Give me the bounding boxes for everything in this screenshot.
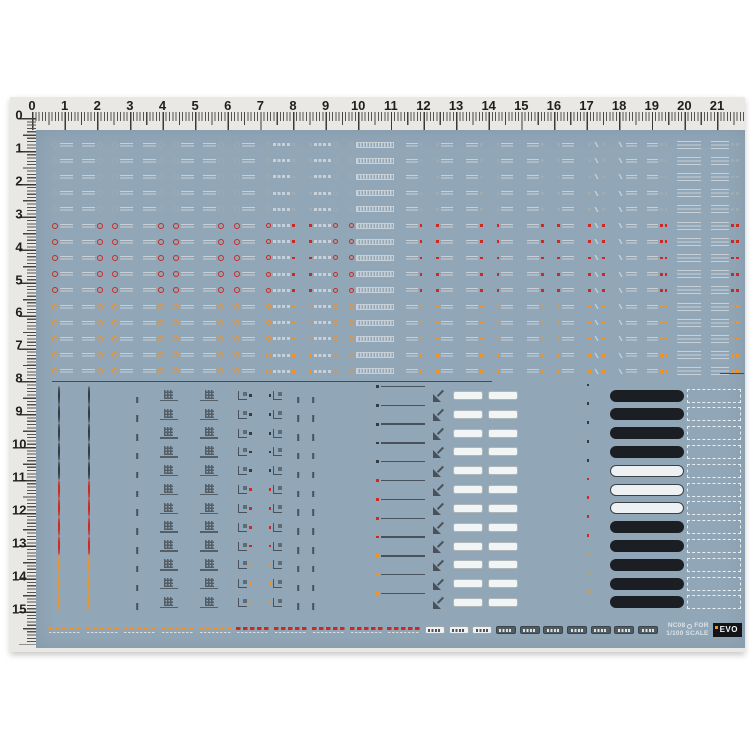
decal-row <box>48 138 742 151</box>
decal-mark-text-dot <box>321 462 347 479</box>
decal-mark-circle-dash <box>170 187 198 200</box>
decal-mark-circle-dash <box>170 170 198 183</box>
decal-mark-bracket-dot <box>103 519 125 536</box>
decal-mark-tee-mark2 <box>306 538 320 555</box>
decal-mark-roundel-large <box>44 462 74 479</box>
decal-mark-circle-bar-square <box>261 170 301 183</box>
decal-mark-stack-lines <box>673 219 705 232</box>
decal-mark-dash-circle <box>78 332 106 345</box>
ruler-top-number: 10 <box>351 99 365 112</box>
decal-mark-bracket-dot <box>103 594 125 611</box>
decal-mark-circle-dash <box>109 138 137 151</box>
decal-mark-tee-mark <box>291 538 305 555</box>
decal-mark-dash-circle <box>78 154 106 167</box>
decal-mark-circle-bar-square <box>261 219 301 232</box>
decal-mark-circle-dash <box>48 365 76 378</box>
decal-mark-circle-dash <box>109 349 137 362</box>
decal-mark-step-square <box>230 519 260 536</box>
decal-mark-circle-hatch-bar <box>346 316 398 329</box>
decal-mark-roundel-large <box>44 500 74 517</box>
decal-mark-dashed-box <box>686 387 742 404</box>
decal-mark-pill-label <box>451 443 485 460</box>
decal-mark-dash-circle <box>139 138 167 151</box>
decal-mark-square-bar-circle <box>303 268 343 281</box>
decal-mark-stack-dots <box>708 170 742 183</box>
mini-label-pill-dark <box>614 626 634 634</box>
decal-mark-circle-bar-square <box>261 251 301 264</box>
decal-mark-roundel-small <box>75 594 103 611</box>
decal-mark-circle-bar-square <box>261 284 301 297</box>
decal-mark-tee-mark2 <box>306 519 320 536</box>
decal-mark-circle-bar-square <box>261 154 301 167</box>
decal-mark-circle-dash <box>109 170 137 183</box>
decal-mark-circle-dash <box>48 300 76 313</box>
brand-roundel-icon <box>687 624 692 629</box>
decal-mark-dash-dot <box>521 235 549 248</box>
decal-mark-circle-dash <box>48 235 76 248</box>
decal-mark-tee-mark2 <box>306 481 320 498</box>
decal-mark-circle-dash <box>48 170 76 183</box>
decal-mark-dash-circle <box>200 349 228 362</box>
decal-mark-arrow-dash <box>613 154 641 167</box>
ruler-top-ticks <box>32 112 745 130</box>
decal-mark-circle-dash <box>48 268 76 281</box>
decal-mark-hazard-bar <box>521 538 609 555</box>
decal-mark-circle-dash <box>48 316 76 329</box>
decal-mark-circle-dash <box>109 300 137 313</box>
decal-mark-dash-dot <box>461 203 489 216</box>
ruler-top-number: 5 <box>191 99 198 112</box>
decal-mark-circle-hatch-bar <box>346 284 398 297</box>
decal-mark-bracket-tee <box>126 406 148 423</box>
decal-mark-arrow-diagonal <box>429 443 451 460</box>
decal-mark-bracket-tee <box>126 575 148 592</box>
decal-mark-bracket-tee <box>126 387 148 404</box>
decal-row <box>44 519 742 536</box>
decal-mark-dot-dash <box>430 316 458 329</box>
decal-mark-text-dot <box>321 481 347 498</box>
decal-mark-dot-dash <box>552 332 580 345</box>
decal-mark-arrow-dash <box>613 268 641 281</box>
color-dash-group-orange <box>161 627 195 633</box>
decal-mark-dash-circle <box>78 268 106 281</box>
decal-mark-dash-circle <box>139 219 167 232</box>
decal-mark-circle-dash <box>230 349 258 362</box>
decal-mark-dash-dot <box>521 170 549 183</box>
decal-mark-dash-dot <box>521 138 549 151</box>
decal-mark-dot-dash <box>491 154 519 167</box>
decal-mark-bracket-tee <box>126 538 148 555</box>
decal-mark-dot-dash <box>491 332 519 345</box>
decal-mark-text-dot <box>321 575 347 592</box>
decal-mark-tee-mark2 <box>306 594 320 611</box>
decal-row <box>44 462 742 479</box>
decal-mark-dash-dot <box>461 219 489 232</box>
decal-mark-pill-label <box>451 519 485 536</box>
decal-mark-dash-circle <box>139 203 167 216</box>
decal-mark-arrow-diagonal <box>429 481 451 498</box>
decal-mark-roundel-large <box>44 406 74 423</box>
decal-sheet-photo: 0123456789101112131415161718192021 01234… <box>10 97 745 652</box>
decal-mark-text-line-long <box>374 500 428 517</box>
decal-mark-text-dot <box>321 425 347 442</box>
decal-mark-dash-circle <box>200 251 228 264</box>
decal-mark-dash-circle <box>139 235 167 248</box>
decal-row <box>44 538 742 555</box>
decal-mark-circle-dash <box>109 219 137 232</box>
decal-mark-arrow-diagonal <box>429 575 451 592</box>
decal-mark-tee-mark2 <box>306 425 320 442</box>
decal-mark-square-step <box>261 594 291 611</box>
decal-mark-grid-pair2 <box>189 406 229 423</box>
decal-mark-dots-arrow <box>582 170 610 183</box>
decal-mark-black-panel <box>609 462 685 479</box>
decal-mark-stack-lines <box>673 138 705 151</box>
color-dash-group-red <box>274 627 308 633</box>
decal-mark-circle-dash <box>48 332 76 345</box>
decal-mark-tee-mark2 <box>306 462 320 479</box>
decal-mark-square-step <box>261 538 291 555</box>
decal-mark-square-step <box>261 387 291 404</box>
decal-mark-hazard-bar <box>521 387 609 404</box>
ruler-left-number: 13 <box>12 536 26 549</box>
decal-mark-arrow-diagonal <box>429 500 451 517</box>
decal-mark-black-panel <box>609 519 685 536</box>
decal-mark-text-dot <box>321 519 347 536</box>
decal-mark-dashed-box <box>686 594 742 611</box>
decal-mark-circle-bar-square <box>261 300 301 313</box>
decal-mark-dot-dash <box>430 203 458 216</box>
decal-mark-bracket-tee <box>126 481 148 498</box>
decal-mark-dot-dash <box>552 365 580 378</box>
decal-mark-circle-bar-square <box>261 203 301 216</box>
color-dash-group-orange <box>48 627 82 633</box>
decal-mark-hazard-bar <box>521 462 609 479</box>
ruler-left-number: 5 <box>12 273 26 286</box>
decal-mark-dash-circle <box>200 187 228 200</box>
decal-mark-circle-dash <box>109 268 137 281</box>
decal-mark-tee-mark <box>291 556 305 573</box>
ruler-left-number: 7 <box>12 339 26 352</box>
decal-mark-bracket-dot <box>103 443 125 460</box>
decal-mark-pill-label <box>451 425 485 442</box>
decal-mark-roundel-small <box>75 538 103 555</box>
decal-row <box>48 284 742 297</box>
decal-mark-arrow-diagonal <box>429 387 451 404</box>
decal-mark-roundel-large <box>44 425 74 442</box>
decal-mark-dash-circle <box>78 284 106 297</box>
decal-mark-square-bar-circle <box>303 365 343 378</box>
decal-mark-pill-label <box>451 556 485 573</box>
mini-label-pill-white <box>425 626 445 634</box>
decal-mark-dash-dots <box>643 138 671 151</box>
decal-mark-dots-arrow <box>582 300 610 313</box>
decal-mark-pill-label2 <box>486 406 520 423</box>
ruler-top-number: 8 <box>289 99 296 112</box>
decal-mark-hazard-bar <box>521 406 609 423</box>
decal-mark-pill-label2 <box>486 443 520 460</box>
decal-mark-stack-lines <box>673 187 705 200</box>
decal-mark-square-step <box>261 443 291 460</box>
decal-mark-dashed-box <box>686 443 742 460</box>
decal-mark-dash-circle <box>139 300 167 313</box>
decal-mark-arrow-diagonal <box>429 594 451 611</box>
decal-mark-dash-circle <box>200 316 228 329</box>
decal-mark-dash-circle <box>200 170 228 183</box>
decal-mark-grid-pair <box>149 481 189 498</box>
decal-mark-roundel-small <box>75 387 103 404</box>
decal-mark-square-bar-circle <box>303 332 343 345</box>
decal-mark-hazard-bar <box>521 500 609 517</box>
decal-mark-dash-circle <box>139 316 167 329</box>
mini-label-pill-dark <box>496 626 516 634</box>
decal-mark-dots-arrow <box>582 187 610 200</box>
decal-mark-circle-dash <box>230 251 258 264</box>
decal-mark-stack-dots <box>708 268 742 281</box>
decal-mark-roundel-large <box>44 443 74 460</box>
decal-mark-text-line-long <box>374 481 428 498</box>
decal-mark-dot-dash <box>491 284 519 297</box>
ruler-left-number: 3 <box>12 207 26 220</box>
decal-mark-dash-circle <box>200 203 228 216</box>
decal-mark-dot-dash <box>552 284 580 297</box>
decal-mark-grid-pair <box>149 387 189 404</box>
ruler-top-number: 9 <box>322 99 329 112</box>
decal-row <box>44 406 742 423</box>
decal-mark-dashed-box <box>686 406 742 423</box>
decal-mark-step-square <box>230 387 260 404</box>
mini-label-pill-dark <box>591 626 611 634</box>
decal-mark-grid-pair <box>149 575 189 592</box>
decal-mark-circle-dash <box>230 365 258 378</box>
decal-mark-roundel-large <box>44 594 74 611</box>
decal-mark-bracket-dot <box>103 387 125 404</box>
decal-mark-dash-dots <box>643 300 671 313</box>
decal-mark-grid-pair2 <box>189 443 229 460</box>
decal-mark-hazard-bar <box>521 594 609 611</box>
decal-mark-dot-dash <box>552 316 580 329</box>
decal-mark-dot-dash <box>491 316 519 329</box>
scale-note: NC08 FOR 1/100 SCALE <box>666 623 708 638</box>
decal-mark-dash-dot <box>521 187 549 200</box>
decal-mark-dash-dots <box>643 187 671 200</box>
decal-grid-lower <box>44 387 742 611</box>
decal-mark-circle-hatch-bar <box>346 187 398 200</box>
ruler-top-number: 15 <box>514 99 528 112</box>
cut-line <box>52 381 492 382</box>
decal-mark-dash-dot <box>461 170 489 183</box>
decal-mark-step-square <box>230 556 260 573</box>
decal-row <box>48 349 742 362</box>
decal-mark-roundel-small <box>75 556 103 573</box>
decal-mark-step-square <box>230 443 260 460</box>
decal-mark-dash-circle <box>139 284 167 297</box>
decal-mark-step-square <box>230 406 260 423</box>
decal-mark-grid-pair <box>149 500 189 517</box>
decal-mark-square-step <box>261 425 291 442</box>
ruler-left-number: 2 <box>12 174 26 187</box>
decal-mark-hazard-bar <box>521 481 609 498</box>
decal-mark-tee-mark2 <box>306 406 320 423</box>
decal-mark-arrow-dash <box>613 138 641 151</box>
decal-mark-dash-circle <box>78 219 106 232</box>
decal-mark-circle-dash <box>109 203 137 216</box>
decal-mark-square-bar-circle <box>303 170 343 183</box>
decal-mark-circle-dash <box>170 365 198 378</box>
decal-mark-bracket-tee <box>126 594 148 611</box>
decal-mark-bracket-tee <box>126 556 148 573</box>
decal-mark-grid-pair2 <box>189 575 229 592</box>
decal-mark-circle-dash <box>230 332 258 345</box>
color-dash-group-orange <box>199 627 233 633</box>
decal-mark-grid-pair2 <box>189 387 229 404</box>
decal-mark-bracket-dot <box>103 538 125 555</box>
decal-mark-dash-dot <box>521 251 549 264</box>
decal-mark-dash-circle <box>78 138 106 151</box>
decal-mark-text-dot <box>321 387 347 404</box>
decal-mark-step-square <box>230 538 260 555</box>
decal-mark-stack-dots <box>708 300 742 313</box>
decal-mark-dash-circle <box>78 365 106 378</box>
decal-row <box>48 365 742 378</box>
decal-mark-pill-label2 <box>486 425 520 442</box>
decal-row <box>44 443 742 460</box>
color-dash-group-red <box>312 627 346 633</box>
decal-mark-grid-pair2 <box>189 519 229 536</box>
decal-mark-circle-dash <box>170 284 198 297</box>
ruler-top-number: 13 <box>449 99 463 112</box>
decal-mark-dots-arrow <box>582 138 610 151</box>
decal-mark-bracket-dot <box>103 462 125 479</box>
color-dash-group-red <box>236 627 270 633</box>
decal-mark-dot-text <box>347 500 373 517</box>
decal-mark-dash-dot <box>461 154 489 167</box>
decal-mark-tee-mark <box>291 387 305 404</box>
ruler-left-number: 1 <box>12 141 26 154</box>
decal-mark-dash-circle <box>139 154 167 167</box>
decal-mark-circle-dash <box>48 138 76 151</box>
decal-mark-roundel-small <box>75 425 103 442</box>
decal-mark-dot-dash <box>430 219 458 232</box>
ruler-left-number: 14 <box>12 569 26 582</box>
decal-mark-dot-text <box>347 387 373 404</box>
decal-mark-dash-dot <box>400 300 428 313</box>
ruler-top-number: 0 <box>28 99 35 112</box>
decal-mark-arrow-diagonal <box>429 519 451 536</box>
decal-mark-pill-label2 <box>486 462 520 479</box>
decal-mark-text-line-long <box>374 538 428 555</box>
decal-mark-pill-label <box>451 500 485 517</box>
decal-mark-circle-dash <box>109 332 137 345</box>
decal-mark-dashed-box <box>686 519 742 536</box>
decal-mark-circle-dash <box>170 268 198 281</box>
decal-mark-circle-hatch-bar <box>346 170 398 183</box>
decal-mark-tee-mark2 <box>306 387 320 404</box>
decal-mark-dash-dot <box>461 187 489 200</box>
decal-mark-circle-hatch-bar <box>346 300 398 313</box>
decal-mark-grid-pair2 <box>189 481 229 498</box>
decal-row <box>44 594 742 611</box>
decal-mark-pill-label <box>451 406 485 423</box>
decal-mark-circle-dash <box>230 268 258 281</box>
decal-mark-dash-circle <box>78 235 106 248</box>
decal-mark-roundel-large <box>44 387 74 404</box>
decal-mark-circle-dash <box>170 203 198 216</box>
decal-mark-dot-dash <box>430 235 458 248</box>
decal-row <box>48 332 742 345</box>
decal-mark-dot-dash <box>491 235 519 248</box>
decal-mark-dash-dot <box>461 268 489 281</box>
decal-mark-dots-arrow <box>582 154 610 167</box>
decal-mark-dot-text <box>347 594 373 611</box>
decal-mark-circle-dash <box>170 235 198 248</box>
decal-mark-dot-dash <box>552 251 580 264</box>
decal-mark-stack-lines <box>673 300 705 313</box>
decal-mark-dash-dots <box>643 251 671 264</box>
decal-mark-arrow-dash <box>613 332 641 345</box>
decal-mark-circle-dash <box>109 187 137 200</box>
decal-mark-text-dot <box>321 500 347 517</box>
decal-mark-text-dot <box>321 556 347 573</box>
decal-mark-stack-dots <box>708 235 742 248</box>
decal-row <box>44 556 742 573</box>
decal-mark-pill-label2 <box>486 556 520 573</box>
decal-mark-text-line-long <box>374 387 428 404</box>
decal-mark-dot-dash <box>430 300 458 313</box>
decal-mark-square-bar-circle <box>303 251 343 264</box>
decal-mark-grid-pair <box>149 462 189 479</box>
decal-mark-text-line-long <box>374 425 428 442</box>
decal-mark-square-step <box>261 519 291 536</box>
decal-mark-circle-dash <box>170 251 198 264</box>
decal-mark-stack-dots <box>708 219 742 232</box>
decal-mark-arrow-dash <box>613 187 641 200</box>
decal-mark-dash-dot <box>461 235 489 248</box>
ruler-left-number: 15 <box>12 602 26 615</box>
decal-mark-dash-dots <box>643 332 671 345</box>
decal-mark-step-square <box>230 462 260 479</box>
decal-mark-dash-circle <box>200 332 228 345</box>
decal-mark-bracket-tee <box>126 443 148 460</box>
decal-mark-dot-dash <box>552 170 580 183</box>
decal-mark-pill-label2 <box>486 481 520 498</box>
decal-mark-dot-dash <box>491 170 519 183</box>
decal-mark-dash-circle <box>78 316 106 329</box>
decal-mark-dash-dot <box>461 251 489 264</box>
decal-mark-roundel-small <box>75 481 103 498</box>
ruler-top-number: 7 <box>257 99 264 112</box>
decal-mark-circle-dash <box>230 187 258 200</box>
decal-mark-pill-label <box>451 594 485 611</box>
decal-mark-grid-pair2 <box>189 425 229 442</box>
decal-mark-dot-text <box>347 425 373 442</box>
color-dash-group-orange <box>123 627 157 633</box>
decal-row <box>44 575 742 592</box>
decal-mark-dash-dots <box>643 316 671 329</box>
scale-note-for: FOR <box>694 623 708 630</box>
decal-mark-stack-dots <box>708 349 742 362</box>
decal-mark-dot-dash <box>552 138 580 151</box>
decal-mark-circle-dash <box>230 316 258 329</box>
color-dash-group-orange <box>86 627 120 633</box>
decal-mark-text-line-long <box>374 575 428 592</box>
decal-mark-dot-dash <box>430 251 458 264</box>
decal-row <box>44 387 742 404</box>
decal-mark-dash-dot <box>521 154 549 167</box>
decal-mark-dash-dot <box>521 300 549 313</box>
decal-mark-roundel-small <box>75 500 103 517</box>
decal-mark-dash-dot <box>400 219 428 232</box>
